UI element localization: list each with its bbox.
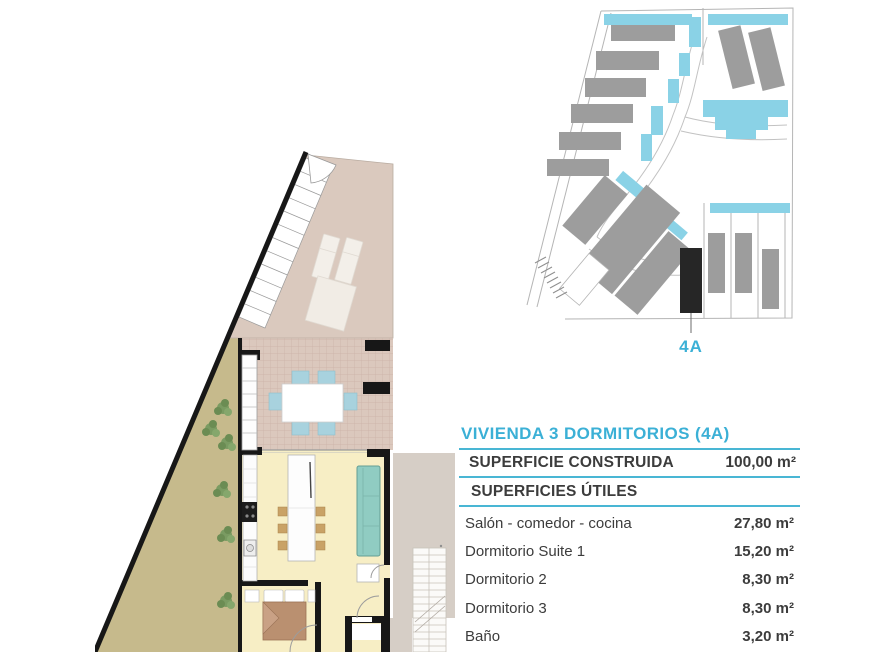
area-value: 8,30 m²: [742, 571, 794, 588]
area-label: Dormitorio Suite 1: [465, 543, 585, 560]
area-label: Salón - comedor - cocina: [465, 515, 632, 532]
area-value: 8,30 m²: [742, 600, 794, 617]
useful-areas-header: SUPERFICIES ÚTILES: [459, 478, 800, 505]
area-row: Baño 3,20 m²: [459, 623, 800, 651]
unit-title: VIVIENDA 3 DORMITORIOS (4A): [459, 424, 800, 448]
parking-hatch: [535, 257, 567, 298]
coffee-table: [357, 564, 379, 582]
dining-table: [282, 384, 343, 422]
area-row: Dormitorio 3 8,30 m²: [459, 594, 800, 622]
highlighted-unit-4a: [680, 248, 702, 313]
brochure-page: 4A VIVIENDA 3 DORMITORIOS (4A) SUPERFICI…: [0, 0, 870, 652]
area-row: Dormitorio Suite 1 15,20 m²: [459, 537, 800, 565]
built-area-row: SUPERFICIE CONSTRUIDA 100,00 m²: [459, 450, 800, 476]
area-value: 15,20 m²: [734, 543, 794, 560]
area-label: Dormitorio 3: [465, 600, 547, 617]
area-value: 27,80 m²: [734, 515, 794, 532]
wall-niche: [352, 617, 372, 622]
outside-staircase: [413, 548, 446, 652]
stove: [242, 502, 257, 522]
built-area-value: 100,00 m²: [725, 454, 796, 472]
floor-plan: [95, 150, 460, 652]
area-rows: Salón - comedor - cocina 27,80 m² Dormit…: [459, 507, 800, 652]
bathroom-floor: [352, 624, 381, 640]
area-row: Dormitorio 2 8,30 m²: [459, 566, 800, 594]
unit-label: 4A: [679, 337, 703, 355]
area-label: Dormitorio 2: [465, 571, 547, 588]
hall-floor: [352, 640, 381, 652]
built-area-label: SUPERFICIE CONSTRUIDA: [469, 454, 674, 472]
site-plan: 4A: [525, 5, 865, 355]
sofa: [357, 466, 380, 556]
kitchen-counter: [242, 455, 257, 581]
terrace-window: [242, 355, 257, 450]
areas-table: VIVIENDA 3 DORMITORIOS (4A) SUPERFICIE C…: [459, 424, 800, 652]
area-row: Salón - comedor - cocina 27,80 m²: [459, 509, 800, 537]
pillow: [285, 590, 304, 602]
pillow: [264, 590, 283, 602]
area-label: Baño: [465, 628, 500, 645]
area-value: 3,20 m²: [742, 628, 794, 645]
